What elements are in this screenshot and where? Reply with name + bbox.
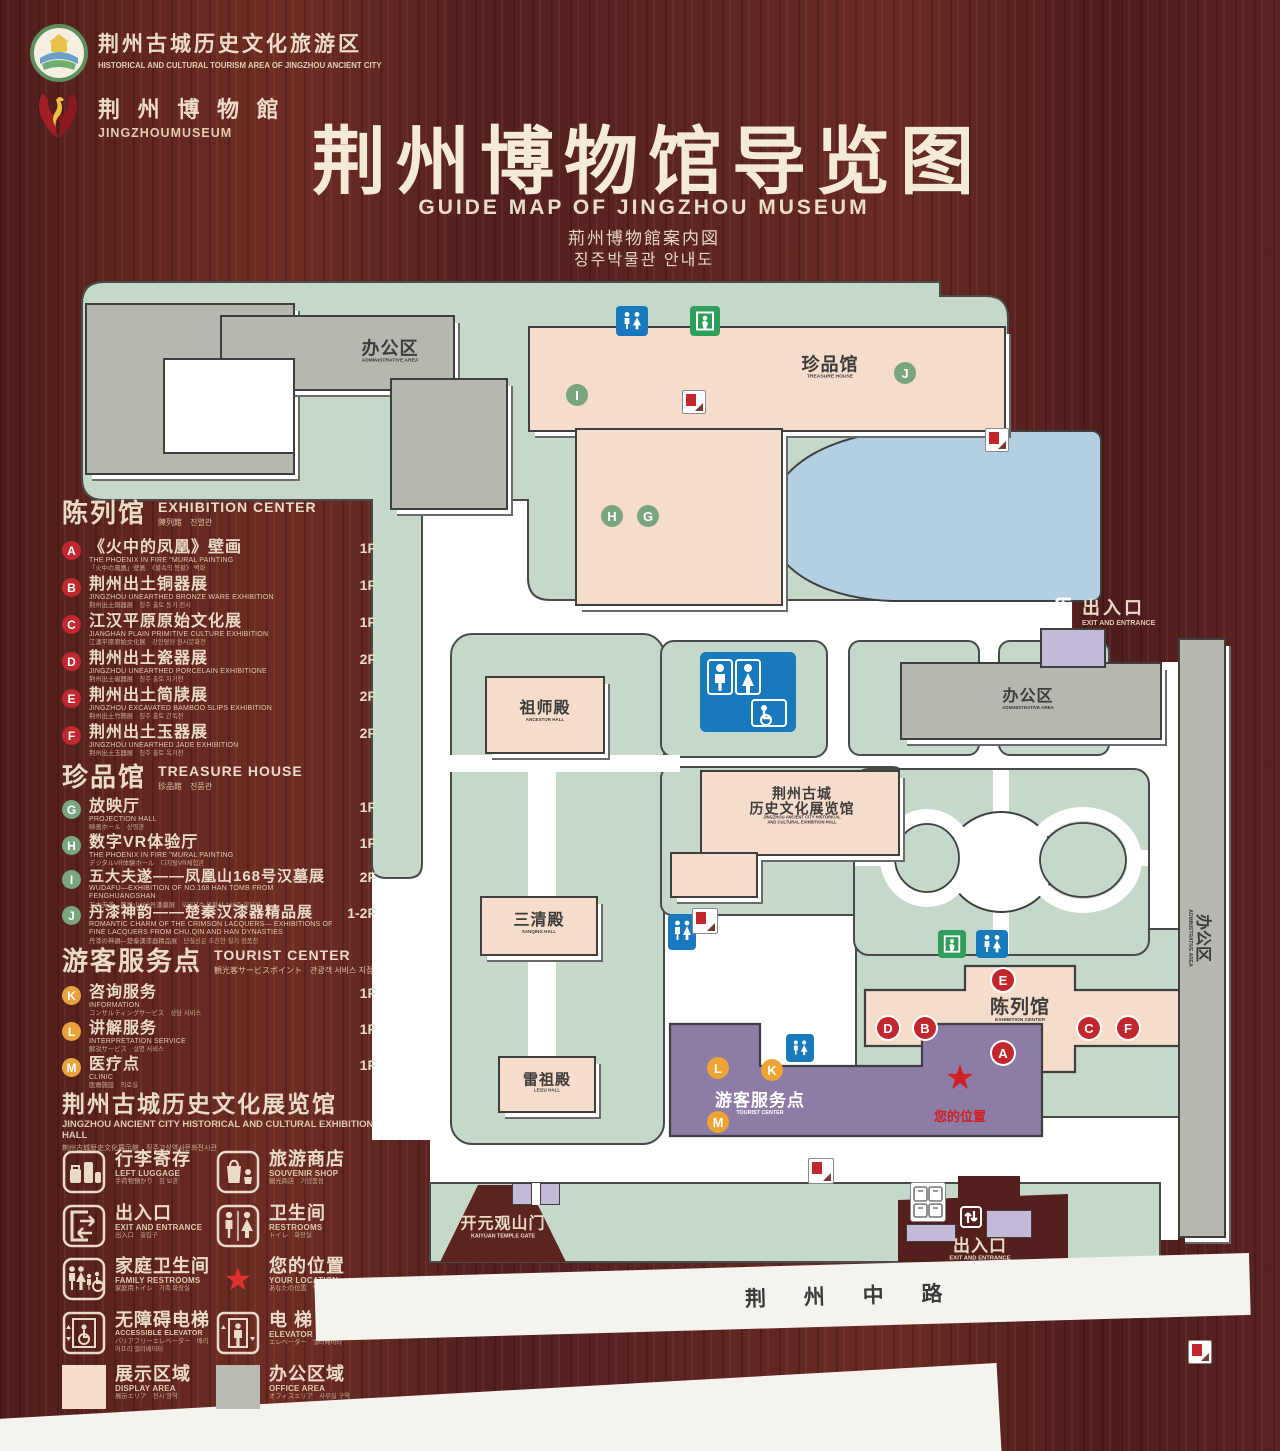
gate-building-top xyxy=(1040,628,1106,668)
museum-logo-icon xyxy=(34,88,82,140)
tourism-logo-icon xyxy=(30,24,88,82)
legend-office-area: 办公区域 OFFICE AREA オフィスエリア 사무실 구역 xyxy=(216,1365,366,1409)
museum-logo-cn: 荆 州 博 物 館 xyxy=(98,92,284,124)
kaiyuan-gate-passage xyxy=(532,1183,540,1205)
restroom-icon xyxy=(616,306,648,336)
marker-a: A xyxy=(992,1042,1014,1064)
road-label: 荆 州 中 路 xyxy=(745,1277,959,1313)
kaiyuan-gate-label: 开元观山门 KAIYUAN TEMPLE GATE xyxy=(460,1216,545,1239)
escalator-icon xyxy=(692,908,718,934)
marker-i: I xyxy=(566,384,588,406)
admin-area-label-top: 办公区 ADMINISTRATIVE AREA xyxy=(358,340,421,365)
legend-display-area: 展示区域 DISPLAY AREA 展示エリア 전시 영역 xyxy=(62,1365,212,1409)
marker-k: K xyxy=(761,1059,783,1081)
entrance-top-label: 出入口 EXIT AND ENTRANCE xyxy=(1082,594,1155,627)
escalator-icon xyxy=(1188,1340,1212,1364)
your-location-star: ★ xyxy=(945,1058,975,1098)
museum-logo-text: 荆 州 博 物 館 JINGZHOUMUSEUM xyxy=(98,92,284,140)
accessible-elevator-icon xyxy=(62,1311,106,1355)
page-title-kr: 징주박물관 안내도 xyxy=(574,246,714,270)
left-luggage-icon xyxy=(910,1182,946,1222)
elevator-icon xyxy=(216,1311,260,1355)
marker-j: J xyxy=(894,362,916,384)
tourism-logo-cn: 荆州古城历史文化旅游区 xyxy=(98,28,382,58)
sanqing-hall-label: 三清殿 SANQING HALL xyxy=(513,913,564,935)
display-area-swatch xyxy=(62,1365,106,1409)
marker-c: C xyxy=(1078,1017,1100,1039)
tourism-logo-text: 荆州古城历史文化旅游区 HISTORICAL AND CULTURAL TOUR… xyxy=(98,28,382,70)
page-title-en: GUIDE MAP OF JINGZHOU MUSEUM xyxy=(418,196,869,220)
map-overlay-shapes xyxy=(60,278,1235,1316)
gate-arrows-icon xyxy=(1048,596,1076,622)
tourism-logo-en: HISTORICAL AND CULTURAL TOURISM AREA OF … xyxy=(98,61,382,70)
kaiyuan-gate-pier xyxy=(512,1183,532,1205)
restroom-icon xyxy=(976,930,1008,958)
marker-m: M xyxy=(707,1111,729,1133)
south-gate-mass2 xyxy=(958,1176,1020,1203)
marker-f: F xyxy=(1117,1017,1139,1039)
marker-g: G xyxy=(637,505,659,527)
tourist-center-label: 游客服务点 TOURIST CENTER xyxy=(715,1092,805,1116)
leizu-hall-label: 雷祖殿 LEIZU HALL xyxy=(523,1073,571,1094)
your-location-label: 您的位置 xyxy=(934,1106,986,1125)
gate-arrows-icon xyxy=(958,1204,984,1230)
museum-map: 办公区 ADMINISTRATIVE AREA 办公区 ADMINISTRATI… xyxy=(60,278,1235,1316)
marker-d: D xyxy=(877,1017,899,1039)
restroom-accessible-icon xyxy=(700,652,796,732)
legend-accessible-elevator: 无障碍电梯 ACCESSIBLE ELEVATOR バリアフリーエレベーター 배… xyxy=(62,1311,212,1355)
exhibition-center-label: 陈列馆 EXHIBITION CENTER xyxy=(990,998,1050,1024)
treasure-house-label: 珍品馆 TREASURE HOUSE xyxy=(802,356,859,381)
marker-h: H xyxy=(601,505,623,527)
ancient-city-hall-label: 荆州古城 历史文化展览馆 JINGZHOU ANCIENT CITY HISTO… xyxy=(750,787,855,826)
south-gate-pier xyxy=(986,1210,1032,1238)
escalator-icon xyxy=(682,390,706,414)
office-area-swatch xyxy=(216,1365,260,1409)
restroom-icon xyxy=(786,1034,814,1062)
museum-logo-en: JINGZHOUMUSEUM xyxy=(98,126,284,140)
exit-icon xyxy=(938,930,966,958)
page-title: 荆州博物馆导览图 xyxy=(312,102,984,209)
marker-e: E xyxy=(992,969,1014,991)
admin-area-label-strip: 办公区 ADMINISTRATIVE AREA xyxy=(1187,909,1217,967)
entrance-south-label: 出入口 EXIT AND ENTRANCE xyxy=(946,1238,1014,1263)
office-building-strip: 办公区 ADMINISTRATIVE AREA xyxy=(1178,638,1226,1238)
marker-b: B xyxy=(914,1017,936,1039)
marker-l: L xyxy=(707,1057,729,1079)
escalator-icon xyxy=(808,1158,834,1184)
ancestor-hall-label: 祖师殿 ANCESTOR HALL xyxy=(519,701,570,723)
poster: { "logos": { "tourism": {"cn": "荆州古城历史文化… xyxy=(0,0,1280,1451)
admin-area-label-right: 办公区 ADMINISTRATIVE AREA xyxy=(999,689,1057,711)
exit-icon xyxy=(690,306,720,336)
escalator-icon xyxy=(985,428,1009,452)
kaiyuan-gate-pier xyxy=(540,1183,560,1205)
